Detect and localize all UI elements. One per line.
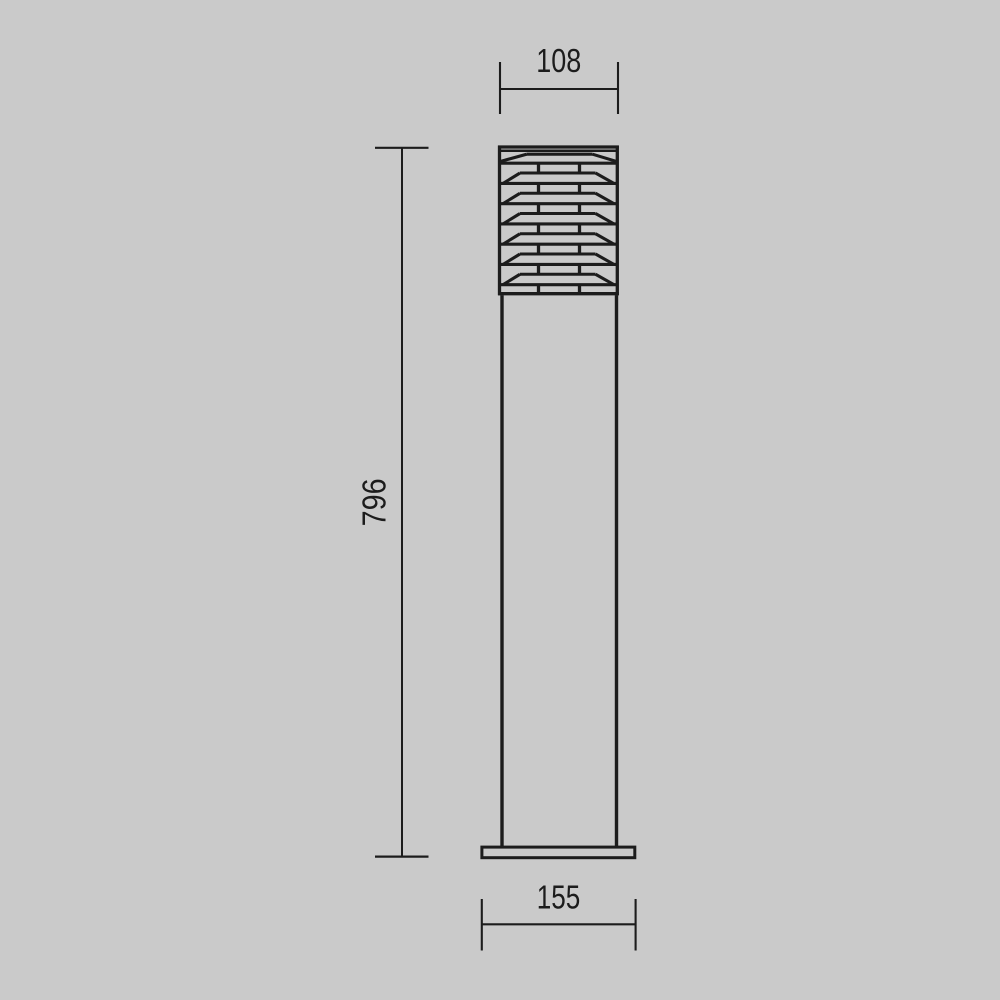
svg-text:108: 108 (536, 42, 581, 79)
svg-text:796: 796 (356, 478, 393, 526)
svg-text:155: 155 (537, 879, 581, 916)
